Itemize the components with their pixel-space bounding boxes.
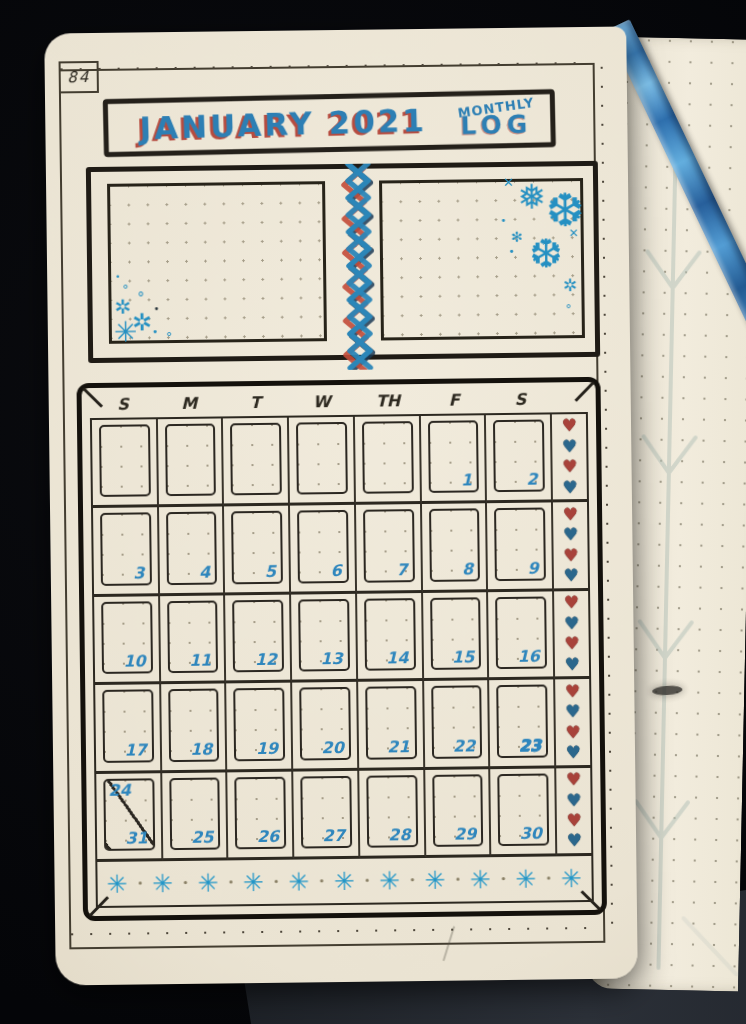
weekday-label: F (421, 385, 488, 414)
day-cell: 4 (159, 507, 226, 596)
photo-of-bullet-journal: 84 JANUARY 2021 MONTHLY LOG • ° ✲ ° ✲ ✳ … (0, 0, 746, 1024)
day-cell (289, 417, 356, 506)
date-number: 1 (461, 471, 472, 490)
date-number: 10 (123, 652, 145, 671)
day-cell: 29 (425, 769, 492, 858)
page-title: JANUARY 2021 (116, 101, 451, 147)
ring-icon: ° (166, 330, 173, 343)
dot-icon: • (410, 875, 416, 885)
heart-icon: ♥ (565, 703, 580, 720)
sparkle-snowflake-icon: ✳ (379, 866, 400, 895)
date-number: 24 (108, 780, 130, 799)
date-number: 27 (322, 826, 344, 845)
date-number: 16 (517, 647, 539, 666)
dot-icon: • (364, 876, 370, 886)
dot-icon: • (183, 878, 189, 888)
dot-icon: • (115, 273, 120, 282)
day-cell: 30 (491, 768, 558, 857)
date-number: 23 (519, 735, 541, 754)
day-cell: 15 (423, 592, 490, 681)
date-number: 8 (462, 559, 473, 578)
day-cell: 8 (422, 504, 489, 593)
weekday-label: TH (355, 386, 422, 415)
snowflake-border-band: ✳ • ✳ • ✳ • ✳ • ✳ • ✳ • ✳ • ✳ • ✳ (97, 856, 592, 906)
day-cell: 10 (94, 596, 161, 685)
date-number: 21 (387, 737, 409, 756)
cross-sparkle-icon: ✕ (503, 176, 514, 189)
weekday-label: T (222, 388, 289, 417)
heart-icon: ♥ (564, 615, 579, 632)
sparkle-snowflake-icon: ✳ (470, 865, 491, 894)
date-number: 29 (454, 824, 476, 843)
heart-icon: ♥ (562, 438, 577, 455)
heart-icon: ♥ (563, 594, 578, 611)
heart-icon: ♥ (564, 656, 579, 673)
date-number: 22 (453, 736, 475, 755)
heart-icon: ♥ (562, 506, 577, 523)
ring-icon: ° (137, 290, 144, 304)
sparkle-snowflake-icon: ✳ (515, 864, 536, 893)
dot-icon: • (154, 304, 160, 314)
dot-icon: • (455, 875, 461, 885)
sparkle-snowflake-icon: ✳ (288, 867, 309, 896)
date-number: 5 (265, 562, 276, 581)
day-cell: 13 (291, 594, 358, 683)
sparkle-snowflake-icon: ✳ (152, 869, 173, 898)
date-number: 17 (124, 740, 146, 759)
sparkle-snowflake-icon: ✳ (107, 869, 128, 898)
weekday-label: M (156, 388, 223, 417)
day-cell: 7 (356, 504, 423, 593)
heart-icon: ♥ (565, 683, 580, 700)
calendar-grid: S M T W TH F S 1 2 ♥ ♥ (76, 377, 607, 921)
day-cell: 20 (292, 682, 359, 771)
left-note-box: • ° ✲ ° ✲ ✳ • • ° (107, 181, 327, 344)
heart-icon: ♥ (563, 547, 578, 564)
heart-icon: ♥ (562, 459, 577, 476)
day-cell: 23 (489, 680, 556, 769)
sparkle-snowflake-icon: ✳ (198, 868, 219, 897)
day-cell: 28 (359, 770, 426, 859)
day-cell: 11 (160, 595, 227, 684)
date-number: 4 (199, 562, 210, 581)
date-number: 3 (133, 563, 144, 582)
day-cell: 17 (95, 684, 162, 773)
heart-icon: ♥ (566, 771, 581, 788)
day-cell: 5 (224, 506, 291, 595)
heart-icon: ♥ (562, 479, 577, 496)
day-cell: 2 (486, 414, 553, 503)
day-cell: 19 (227, 683, 294, 772)
dot-icon: • (501, 216, 507, 226)
day-cell: 12 (226, 594, 293, 683)
heart-icon: ♥ (561, 418, 576, 435)
heart-icon: ♥ (564, 635, 579, 652)
date-number: 26 (257, 827, 279, 846)
date-number: 28 (388, 825, 410, 844)
date-number: 2 (526, 470, 537, 489)
page-number-box: 84 (59, 61, 99, 93)
heart-icon: ♥ (566, 833, 581, 850)
ring-icon: ° (566, 303, 572, 315)
right-note-box: ✕ ❅ ❆ • ✻ ❆ ✕ • ✲ ° (379, 178, 585, 340)
date-number: 13 (320, 649, 342, 668)
date-number: 9 (528, 558, 539, 577)
weekday-label: S (487, 384, 554, 413)
date-number: 25 (191, 828, 213, 847)
date-number: 15 (452, 648, 474, 667)
dot-icon: • (546, 873, 552, 883)
day-cell: 3 (93, 508, 160, 597)
title-banner: JANUARY 2021 MONTHLY LOG (103, 89, 556, 157)
page-number: 84 (67, 68, 90, 86)
date-number: 30 (520, 824, 542, 843)
heart-icon: ♥ (563, 567, 578, 584)
snowflake-icon: ❆ (529, 233, 563, 273)
heart-icon: ♥ (566, 792, 581, 809)
calendar-cells: 1 2 ♥ ♥ ♥ ♥ 3 4 5 6 7 8 9 ♥ ♥ (90, 412, 594, 908)
sparkle-snowflake-icon: ✳ (243, 867, 264, 896)
heart-icon: ♥ (563, 526, 578, 543)
day-cell: 25 (162, 772, 229, 861)
date-number: 11 (189, 651, 211, 670)
dot-icon: • (273, 877, 279, 887)
day-cell: 16 (488, 591, 555, 680)
split-day-cell-24-31: 24 31 (96, 773, 163, 862)
monthly-log-label: MONTHLY LOG (450, 100, 543, 138)
day-cell (92, 419, 159, 508)
dot-icon: • (228, 877, 234, 887)
day-cell (158, 418, 225, 507)
hearts-tracker-cell: ♥ ♥ ♥ ♥ (555, 679, 590, 768)
day-cell: 1 (420, 415, 487, 504)
dot-icon: • (319, 876, 325, 886)
heart-icon: ♥ (565, 744, 580, 761)
day-cell: 22 (424, 680, 491, 769)
cross-sparkle-icon: ✕ (569, 227, 579, 239)
weekday-label: S (90, 389, 157, 418)
day-cell: 14 (357, 593, 424, 682)
date-number: 6 (330, 561, 341, 580)
hearts-tracker-cell: ♥ ♥ ♥ ♥ (552, 414, 587, 503)
hearts-tracker-cell: ♥ ♥ ♥ ♥ (553, 502, 588, 591)
snowflake-icon: ❆ (546, 187, 585, 233)
day-cell: 26 (228, 771, 295, 860)
date-number: 19 (256, 738, 278, 757)
date-number: 18 (190, 739, 212, 758)
dot-icon: • (500, 874, 506, 884)
day-cell: 9 (487, 503, 554, 592)
snowflake-icon: ❅ (518, 179, 547, 213)
date-number: 12 (255, 650, 277, 669)
heart-icon: ♥ (565, 724, 580, 741)
dot-icon: • (137, 878, 143, 888)
day-cell: 18 (161, 684, 228, 773)
notes-section: • ° ✲ ° ✲ ✳ • • ° ✕ ❅ (86, 161, 600, 363)
sparkle-snowflake-icon: ✳ (425, 865, 446, 894)
date-number: 31 (125, 828, 147, 847)
asterisk-snowflake-icon: ✲ (563, 277, 577, 294)
weekday-label: W (288, 387, 355, 416)
sparkle-snowflake-icon: ✳ (334, 866, 355, 895)
day-cell (355, 416, 422, 505)
date-number: 20 (321, 738, 343, 757)
hearts-tracker-cell: ♥ ♥ ♥ ♥ (554, 591, 589, 680)
sparkle-snowflake-icon: ✳ (114, 318, 138, 346)
hearts-tracker-cell: ♥ ♥ ♥ ♥ (556, 768, 591, 857)
sparkle-snowflake-icon: ✳ (561, 864, 582, 893)
day-cell (223, 418, 290, 507)
day-cell: 6 (290, 505, 357, 594)
star-sparkle-icon: ✻ (511, 230, 523, 244)
hearts-column-header (554, 384, 588, 412)
dot-icon: • (152, 326, 159, 337)
date-number: 14 (386, 648, 408, 667)
date-number: 7 (396, 560, 407, 579)
asterisk-snowflake-icon: ✲ (114, 297, 131, 317)
heart-icon: ♥ (566, 812, 581, 829)
dot-icon: • (508, 246, 515, 257)
monthly-log-page: 84 JANUARY 2021 MONTHLY LOG • ° ✲ ° ✲ ✳ … (44, 26, 638, 985)
zigzag-ribbon-divider (340, 164, 379, 370)
day-cell: 27 (293, 770, 360, 859)
day-cell: 21 (358, 681, 425, 770)
